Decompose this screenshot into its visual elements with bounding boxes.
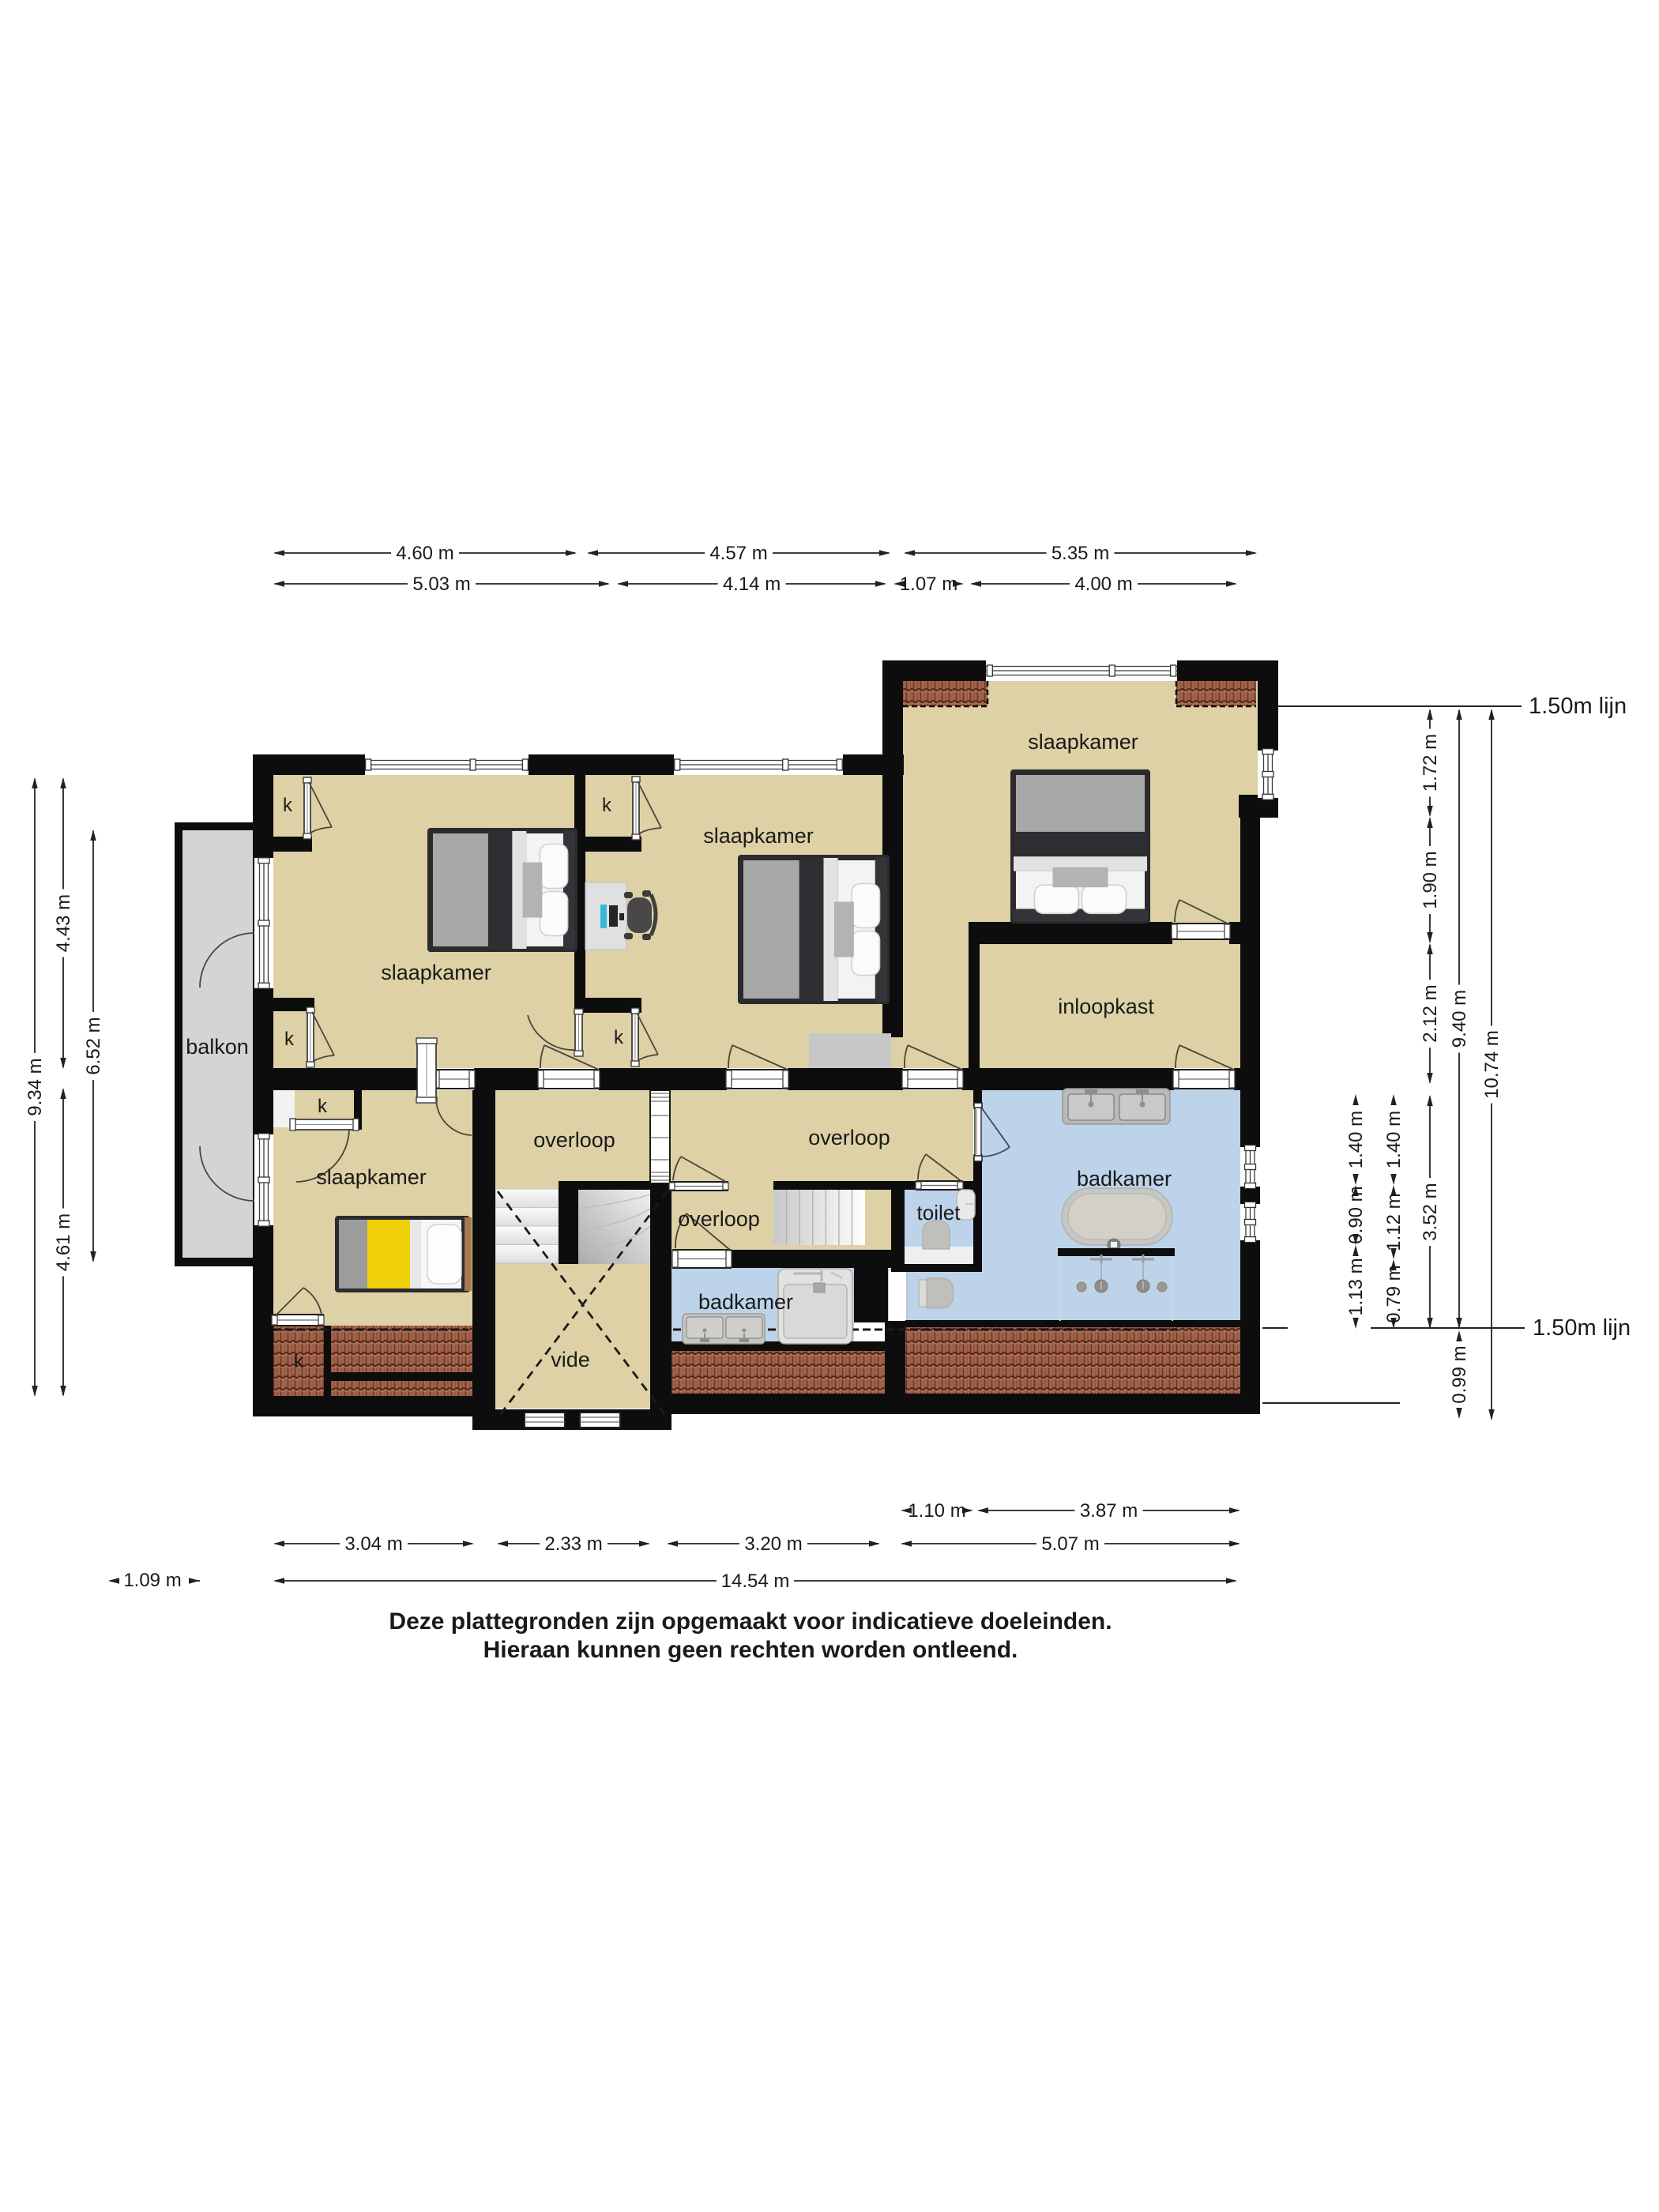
svg-text:1.13 m: 1.13 m bbox=[1345, 1258, 1367, 1315]
svg-text:overloop: overloop bbox=[808, 1126, 890, 1149]
svg-text:3.20 m: 3.20 m bbox=[744, 1533, 802, 1555]
svg-text:slaapkamer: slaapkamer bbox=[703, 824, 814, 848]
svg-text:1.12 m: 1.12 m bbox=[1383, 1193, 1405, 1251]
svg-text:1.72 m: 1.72 m bbox=[1420, 734, 1441, 792]
svg-text:1.09 m: 1.09 m bbox=[123, 1570, 181, 1591]
svg-text:3.04 m: 3.04 m bbox=[344, 1533, 402, 1555]
svg-text:14.54 m: 14.54 m bbox=[721, 1571, 790, 1592]
svg-text:vide: vide bbox=[551, 1348, 590, 1371]
svg-text:6.52 m: 6.52 m bbox=[83, 1017, 104, 1074]
svg-text:1.50m lijn: 1.50m lijn bbox=[1533, 1315, 1631, 1341]
svg-text:2.33 m: 2.33 m bbox=[544, 1533, 602, 1555]
svg-text:Deze plattegronden zijn opgema: Deze plattegronden zijn opgemaakt voor i… bbox=[389, 1608, 1112, 1635]
svg-text:k: k bbox=[614, 1027, 624, 1048]
svg-text:badkamer: badkamer bbox=[698, 1290, 793, 1314]
svg-text:k: k bbox=[294, 1351, 304, 1372]
svg-text:5.03 m: 5.03 m bbox=[412, 574, 470, 595]
svg-text:0.90 m: 0.90 m bbox=[1345, 1186, 1367, 1243]
svg-text:3.52 m: 3.52 m bbox=[1420, 1183, 1441, 1240]
svg-text:k: k bbox=[602, 795, 612, 816]
svg-text:9.40 m: 9.40 m bbox=[1449, 990, 1470, 1048]
svg-text:inloopkast: inloopkast bbox=[1058, 995, 1154, 1018]
svg-text:4.57 m: 4.57 m bbox=[709, 543, 767, 564]
svg-text:1.50m lijn: 1.50m lijn bbox=[1529, 694, 1627, 719]
svg-text:badkamer: badkamer bbox=[1077, 1167, 1172, 1191]
svg-text:overloop: overloop bbox=[533, 1128, 615, 1152]
svg-text:k: k bbox=[284, 1029, 295, 1050]
svg-text:4.60 m: 4.60 m bbox=[396, 543, 453, 564]
svg-text:4.14 m: 4.14 m bbox=[723, 574, 781, 595]
svg-text:toilet: toilet bbox=[917, 1201, 961, 1224]
svg-text:balkon: balkon bbox=[186, 1035, 249, 1059]
svg-text:5.07 m: 5.07 m bbox=[1041, 1533, 1099, 1555]
svg-text:k: k bbox=[283, 795, 293, 816]
svg-text:3.87 m: 3.87 m bbox=[1080, 1500, 1138, 1522]
svg-text:1.07 m: 1.07 m bbox=[900, 574, 957, 595]
svg-text:1.10 m: 1.10 m bbox=[908, 1500, 965, 1522]
svg-text:k: k bbox=[318, 1096, 328, 1117]
svg-text:slaapkamer: slaapkamer bbox=[1028, 730, 1138, 754]
svg-text:1.40 m: 1.40 m bbox=[1345, 1111, 1367, 1168]
svg-text:overloop: overloop bbox=[678, 1207, 760, 1231]
svg-text:slaapkamer: slaapkamer bbox=[316, 1165, 427, 1189]
svg-text:1.40 m: 1.40 m bbox=[1383, 1111, 1405, 1168]
svg-text:slaapkamer: slaapkamer bbox=[381, 961, 491, 984]
svg-text:2.12 m: 2.12 m bbox=[1420, 984, 1441, 1042]
svg-text:9.34 m: 9.34 m bbox=[24, 1058, 46, 1115]
svg-text:0.99 m: 0.99 m bbox=[1449, 1345, 1470, 1403]
svg-text:10.74 m: 10.74 m bbox=[1481, 1030, 1503, 1099]
svg-text:5.35 m: 5.35 m bbox=[1051, 543, 1109, 564]
svg-text:1.90 m: 1.90 m bbox=[1420, 851, 1441, 908]
svg-text:0.79 m: 0.79 m bbox=[1383, 1265, 1405, 1322]
svg-text:4.61 m: 4.61 m bbox=[53, 1213, 74, 1271]
svg-text:4.00 m: 4.00 m bbox=[1074, 574, 1132, 595]
svg-text:Hieraan kunnen geen rechten wo: Hieraan kunnen geen rechten worden ontle… bbox=[483, 1637, 1018, 1663]
svg-text:4.43 m: 4.43 m bbox=[53, 894, 74, 952]
